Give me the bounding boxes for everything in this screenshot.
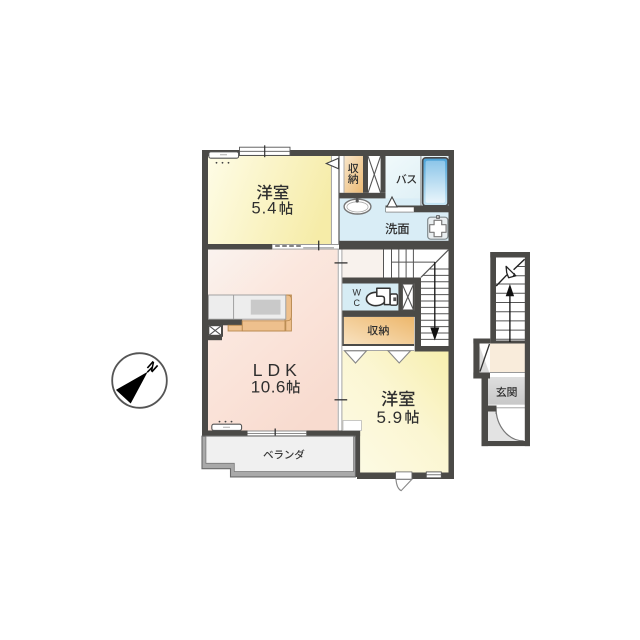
svg-text:W: W xyxy=(352,288,361,298)
svg-text:10.6: 10.6 xyxy=(251,378,286,397)
svg-text:5.9: 5.9 xyxy=(377,408,404,427)
svg-text:C: C xyxy=(353,298,360,308)
svg-text:5.4: 5.4 xyxy=(252,200,278,218)
